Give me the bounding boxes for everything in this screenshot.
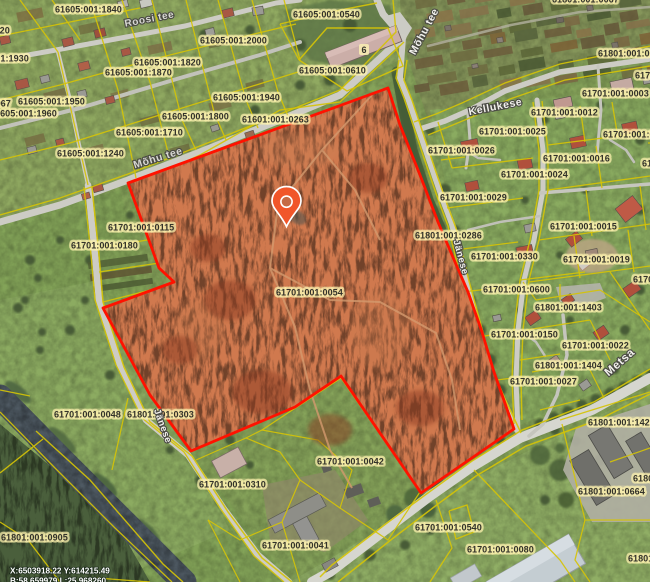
svg-text:61605:001:1960: 61605:001:1960 (0, 108, 57, 118)
svg-text:61701:001:0115: 61701:001:0115 (108, 222, 174, 232)
svg-text:61701:001:0057: 61701:001:0057 (633, 274, 650, 284)
svg-text:61701:001:0180: 61701:001:0180 (71, 240, 138, 250)
svg-text:61701:001:0150: 61701:001:0150 (491, 329, 558, 339)
svg-text:61701:001:0600: 61701:001:0600 (483, 284, 550, 294)
svg-text:61605:001:1710: 61605:001:1710 (116, 127, 183, 137)
svg-text:61605:001:1920: 61605:001:1920 (0, 25, 10, 35)
svg-text:61601:001:0263: 61601:001:0263 (242, 114, 309, 124)
svg-text:6: 6 (362, 45, 367, 55)
svg-text:61605:001:1820: 61605:001:1820 (134, 57, 201, 67)
svg-text:61701:001:0044: 61701:001:0044 (642, 158, 650, 168)
svg-text:61701:001:0026: 61701:001:0026 (428, 145, 495, 155)
svg-text:61801:001:0067: 61801:001:0067 (552, 0, 619, 4)
svg-text:61605:001:1840: 61605:001:1840 (55, 4, 122, 14)
svg-text:61801:001:0066: 61801:001:0066 (598, 48, 650, 58)
svg-text:61701:001:0310: 61701:001:0310 (199, 479, 266, 489)
svg-text:61605:001:2000: 61605:001:2000 (200, 35, 267, 45)
svg-text:61605:001:1240: 61605:001:1240 (57, 148, 124, 158)
svg-text:61801:001:0286: 61801:001:0286 (415, 230, 482, 240)
svg-text:61801:001:0905: 61801:001:0905 (1, 532, 68, 542)
svg-text:61701:001:0013: 61701:001:0013 (603, 129, 650, 139)
svg-text:61701:001:0022: 61701:001:0022 (562, 340, 629, 350)
svg-text:61701:001:0540: 61701:001:0540 (415, 522, 482, 532)
svg-text:X:6503918.22 Y:614215.49: X:6503918.22 Y:614215.49 (10, 567, 110, 576)
svg-text:61605:001:1940: 61605:001:1940 (213, 92, 280, 102)
svg-text:61801:001:1429: 61801:001:1429 (588, 417, 650, 427)
svg-text:61605:001:1967: 61605:001:1967 (0, 98, 11, 108)
svg-text:61701:001:0024: 61701:001:0024 (501, 169, 569, 179)
svg-text:61701:001:0025: 61701:001:0025 (479, 126, 546, 136)
svg-text:61701:001:0054: 61701:001:0054 (276, 287, 344, 297)
svg-text:61701:001:0016: 61701:001:0016 (543, 153, 610, 163)
svg-text:B:58.659979 L:25.968260: B:58.659979 L:25.968260 (10, 577, 106, 582)
svg-text:61605:001:1870: 61605:001:1870 (105, 67, 172, 77)
svg-text:61801:001:0664: 61801:001:0664 (578, 486, 646, 496)
svg-text:61701:001:0015: 61701:001:0015 (550, 221, 617, 231)
svg-text:61701:001:0022: 61701:001:0022 (635, 70, 650, 80)
svg-text:61701:001:0029: 61701:001:0029 (440, 192, 507, 202)
svg-text:61701:001:0019: 61701:001:0019 (563, 254, 630, 264)
svg-text:61701:001:0048: 61701:001:0048 (54, 409, 121, 419)
svg-text:61605:001:1950: 61605:001:1950 (18, 96, 85, 106)
svg-text:61701:001:0080: 61701:001:0080 (467, 544, 534, 554)
svg-text:61605:001:0610: 61605:001:0610 (299, 65, 366, 75)
svg-text:61801:001:1403: 61801:001:1403 (535, 302, 602, 312)
svg-text:61605:001:0540: 61605:001:0540 (293, 9, 360, 19)
svg-text:61701:001:0042: 61701:001:0042 (317, 456, 384, 466)
svg-text:61701:001:0330: 61701:001:0330 (471, 251, 538, 261)
svg-text:61701:001:0003: 61701:001:0003 (582, 88, 649, 98)
svg-text:61801:001:0802: 61801:001:0802 (628, 553, 650, 563)
svg-text:61605:001:1930: 61605:001:1930 (0, 53, 29, 63)
svg-text:61701:001:0041: 61701:001:0041 (262, 540, 329, 550)
svg-text:61801:001:0663: 61801:001:0663 (633, 473, 650, 483)
svg-text:61701:001:0012: 61701:001:0012 (531, 107, 598, 117)
svg-text:61701:001:0027: 61701:001:0027 (510, 376, 577, 386)
svg-text:61605:001:1800: 61605:001:1800 (162, 111, 229, 121)
svg-text:61801:001:1404: 61801:001:1404 (535, 360, 603, 370)
